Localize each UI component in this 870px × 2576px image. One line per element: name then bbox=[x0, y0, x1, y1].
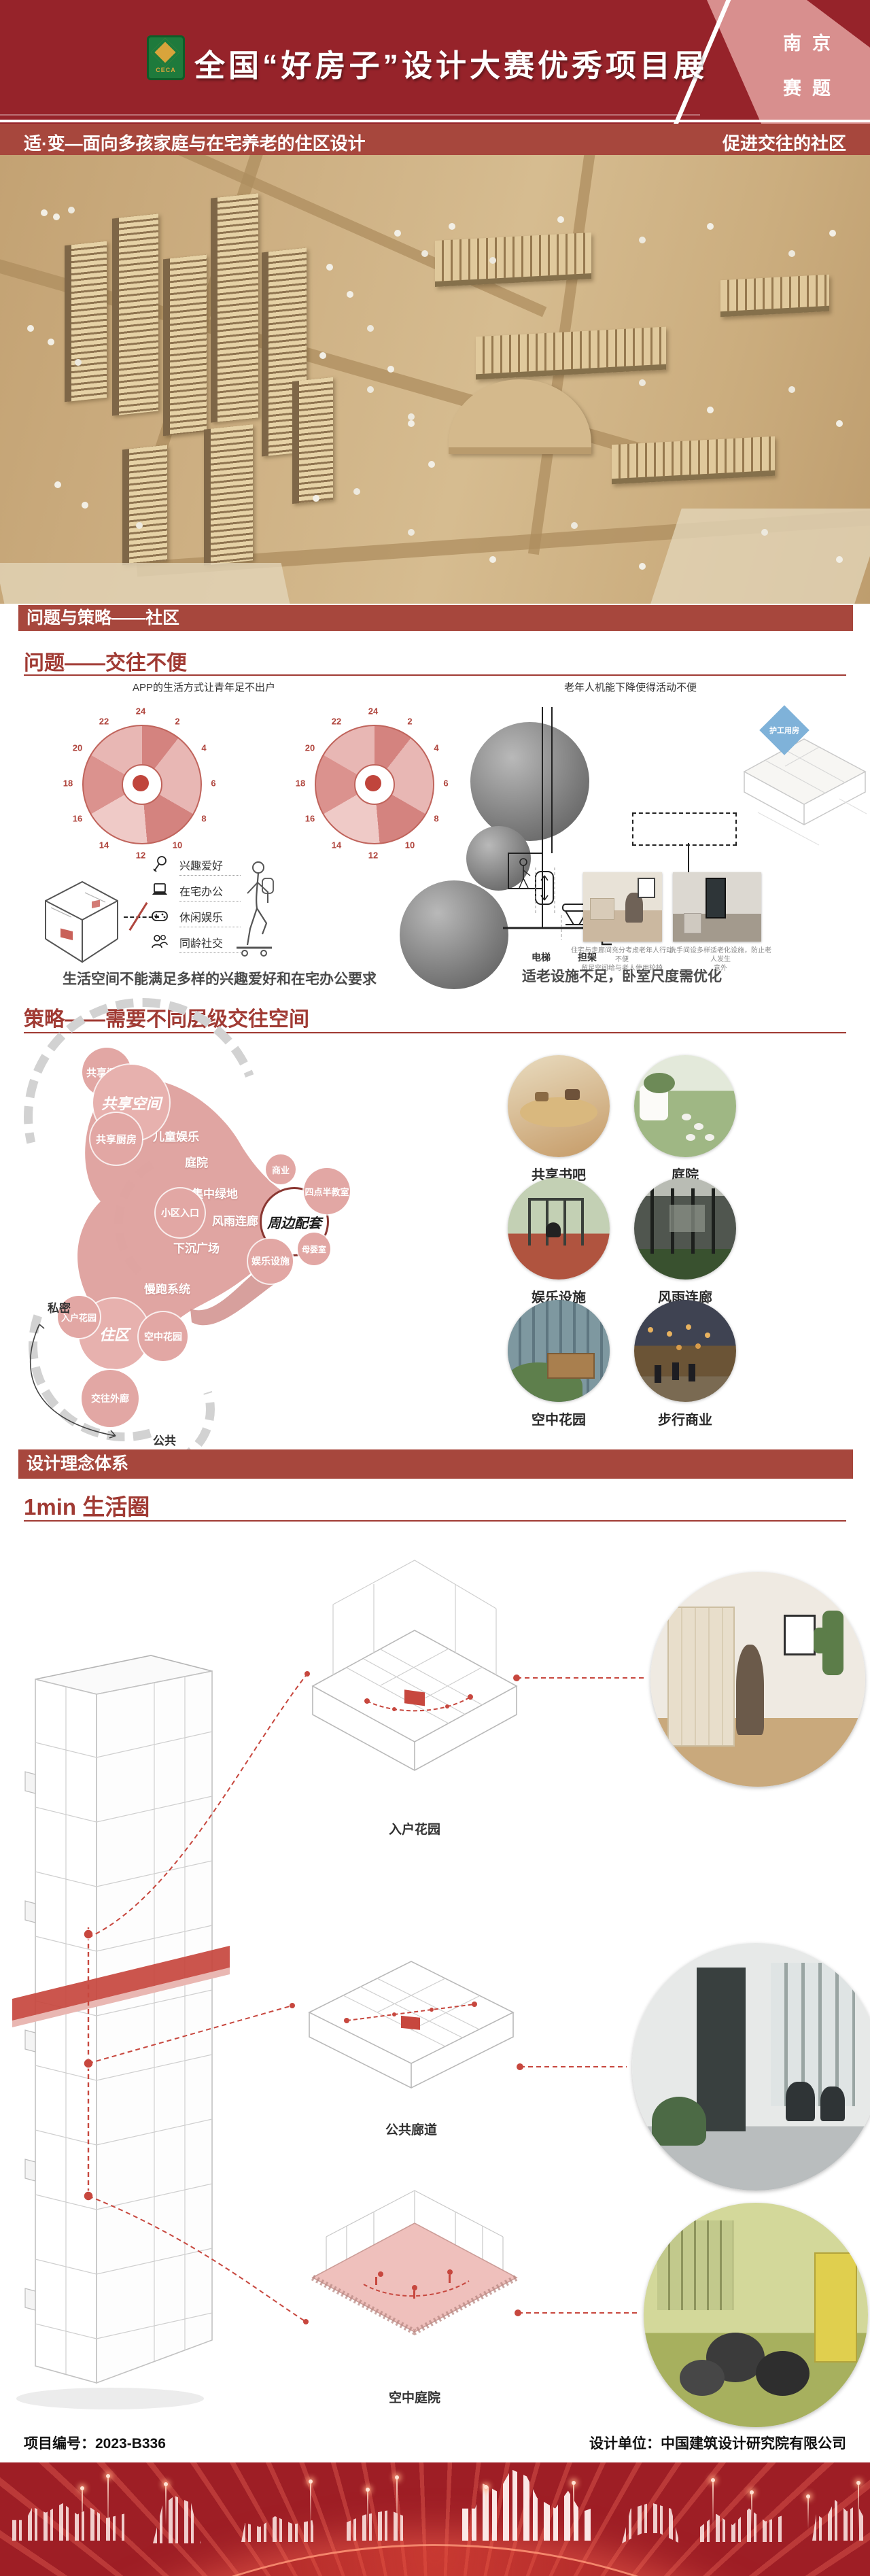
project-theme: 促进交往的社区 bbox=[723, 130, 846, 155]
photo-shared-bookbar bbox=[508, 1055, 610, 1157]
privacy-axis-arc bbox=[14, 1292, 190, 1452]
bubble-nursery: 母婴室 bbox=[298, 1233, 330, 1265]
heading-problem: 问题——交往不便 bbox=[24, 646, 187, 676]
photo-circle-wheelchair bbox=[400, 880, 508, 989]
gamepad-icon bbox=[151, 907, 169, 925]
logo-acronym: CECA bbox=[147, 67, 185, 73]
plan-public-corridor bbox=[292, 1897, 530, 2114]
blob-label-children: 儿童娱乐 bbox=[153, 1127, 199, 1144]
tower-axonometric bbox=[8, 1618, 232, 2420]
bubble-amusement: 娱乐设施 bbox=[248, 1239, 293, 1284]
blob-label-sunken-plaza: 下沉广场 bbox=[173, 1239, 220, 1256]
caption-sky-garden: 空中花园 bbox=[501, 1409, 616, 1428]
design-unit: 设计单位：中国建筑设计研究院有限公司 bbox=[589, 2433, 846, 2453]
project-title: 适·变—面向多孩家庭与在宅养老的住区设计 bbox=[24, 130, 366, 155]
daily-clock-diagram-app: 242 46 810 1214 1618 2022 bbox=[305, 715, 441, 851]
badge-topic: 赛题 bbox=[783, 73, 841, 100]
skateboarder-figure bbox=[230, 858, 284, 960]
caption-elderly: 老年人机能下降使得活动不便 bbox=[564, 680, 697, 694]
heading-problem-rule bbox=[24, 674, 846, 676]
callout-box bbox=[632, 812, 737, 846]
caption-youth-bottom: 生活空间不能满足多样的兴趣爱好和在宅办公要求 bbox=[63, 968, 377, 989]
bubble-classroom: 四点半教室 bbox=[304, 1168, 350, 1214]
project-banner: 适·变—面向多孩家庭与在宅养老的住区设计 促进交往的社区 bbox=[0, 124, 870, 155]
project-number: 项目编号：2023-B336 bbox=[24, 2433, 166, 2453]
daily-clock-diagram-youth: 242 46 810 1214 1618 2022 bbox=[73, 715, 209, 851]
section-bar-community: 问题与策略——社区 bbox=[18, 605, 853, 631]
photo-walking-commerce bbox=[634, 1300, 736, 1402]
section-bar-concept: 设计理念体系 bbox=[18, 1449, 853, 1479]
poster: CECA 全国“好房子”设计大赛优秀项目展 南京 赛题 适·变—面向多孩家庭与在… bbox=[0, 0, 870, 2576]
caption-walking-commerce: 步行商业 bbox=[627, 1409, 743, 1428]
plan-sky-courtyard bbox=[299, 2155, 530, 2386]
photo-covered-corridor bbox=[634, 1178, 736, 1280]
header-divider-line bbox=[0, 114, 700, 116]
photo-entry-garden-interior bbox=[650, 1572, 865, 1787]
callout-line bbox=[688, 843, 689, 872]
caption-elderly-bottom: 适老设施不足，卧室尺度需优化 bbox=[522, 965, 722, 986]
people-icon bbox=[151, 933, 169, 950]
photo-sky-garden bbox=[508, 1300, 610, 1402]
axon-nurse-room bbox=[737, 690, 870, 846]
blob-label-corridor: 风雨连廊 bbox=[212, 1212, 258, 1229]
header-bottom-line bbox=[0, 120, 870, 122]
bottom-skyline-band bbox=[0, 2462, 870, 2576]
badge-city: 南京 bbox=[783, 29, 841, 55]
heading-1min-rule bbox=[24, 1520, 846, 1522]
exhibition-title: 全国“好房子”设计大赛优秀项目展 bbox=[194, 41, 711, 85]
caption-plan-entry-garden: 入户花园 bbox=[292, 1819, 537, 1838]
photo-exercise bbox=[508, 1178, 610, 1280]
photo-courtyard bbox=[634, 1055, 736, 1157]
aerial-model-render bbox=[0, 155, 870, 604]
blob-label-courtyard: 庭院 bbox=[185, 1153, 208, 1170]
axis-public: 公共 bbox=[153, 1431, 176, 1448]
photo-sky-courtyard-interior bbox=[644, 2203, 868, 2427]
bubble-entrance: 小区入口 bbox=[156, 1188, 205, 1237]
axon-small-apartment bbox=[37, 872, 122, 967]
laptop-icon bbox=[151, 881, 169, 899]
label-elevator: 电梯 bbox=[532, 950, 551, 964]
microphone-icon bbox=[151, 855, 169, 873]
photo-bathroom bbox=[673, 872, 761, 942]
plan-entry-garden bbox=[292, 1543, 537, 1815]
caption-plan-sky-courtyard: 空中庭院 bbox=[299, 2388, 530, 2406]
bubble-commerce: 商业 bbox=[266, 1154, 296, 1184]
heading-1min: 1min 生活圈 bbox=[24, 1489, 150, 1522]
caption-plan-public-corridor: 公共廊道 bbox=[292, 2120, 530, 2138]
axis-private: 私密 bbox=[48, 1299, 71, 1316]
caption-youth: APP的生活方式让青年足不出户 bbox=[133, 680, 275, 694]
bubble-shared-kitchen: 共享厨房 bbox=[90, 1113, 142, 1165]
photo-bedroom bbox=[583, 872, 662, 942]
header: CECA 全国“好房子”设计大赛优秀项目展 南京 赛题 bbox=[0, 0, 870, 124]
photo-public-corridor-interior bbox=[632, 1943, 870, 2191]
ceca-logo-icon: CECA bbox=[147, 35, 185, 80]
